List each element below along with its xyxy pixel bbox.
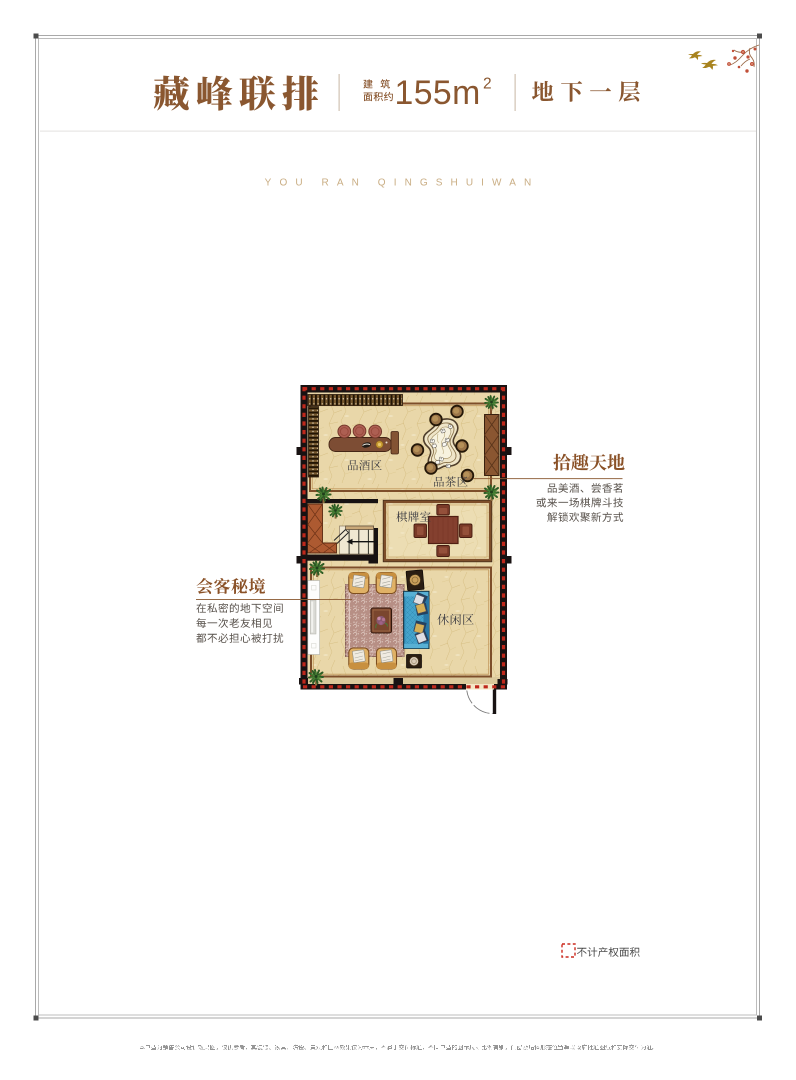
svg-text:155m: 155m xyxy=(395,74,481,112)
svg-text:2: 2 xyxy=(483,76,492,93)
svg-text:YOU RAN QINGSHUIWAN: YOU RAN QINGSHUIWAN xyxy=(265,178,540,189)
